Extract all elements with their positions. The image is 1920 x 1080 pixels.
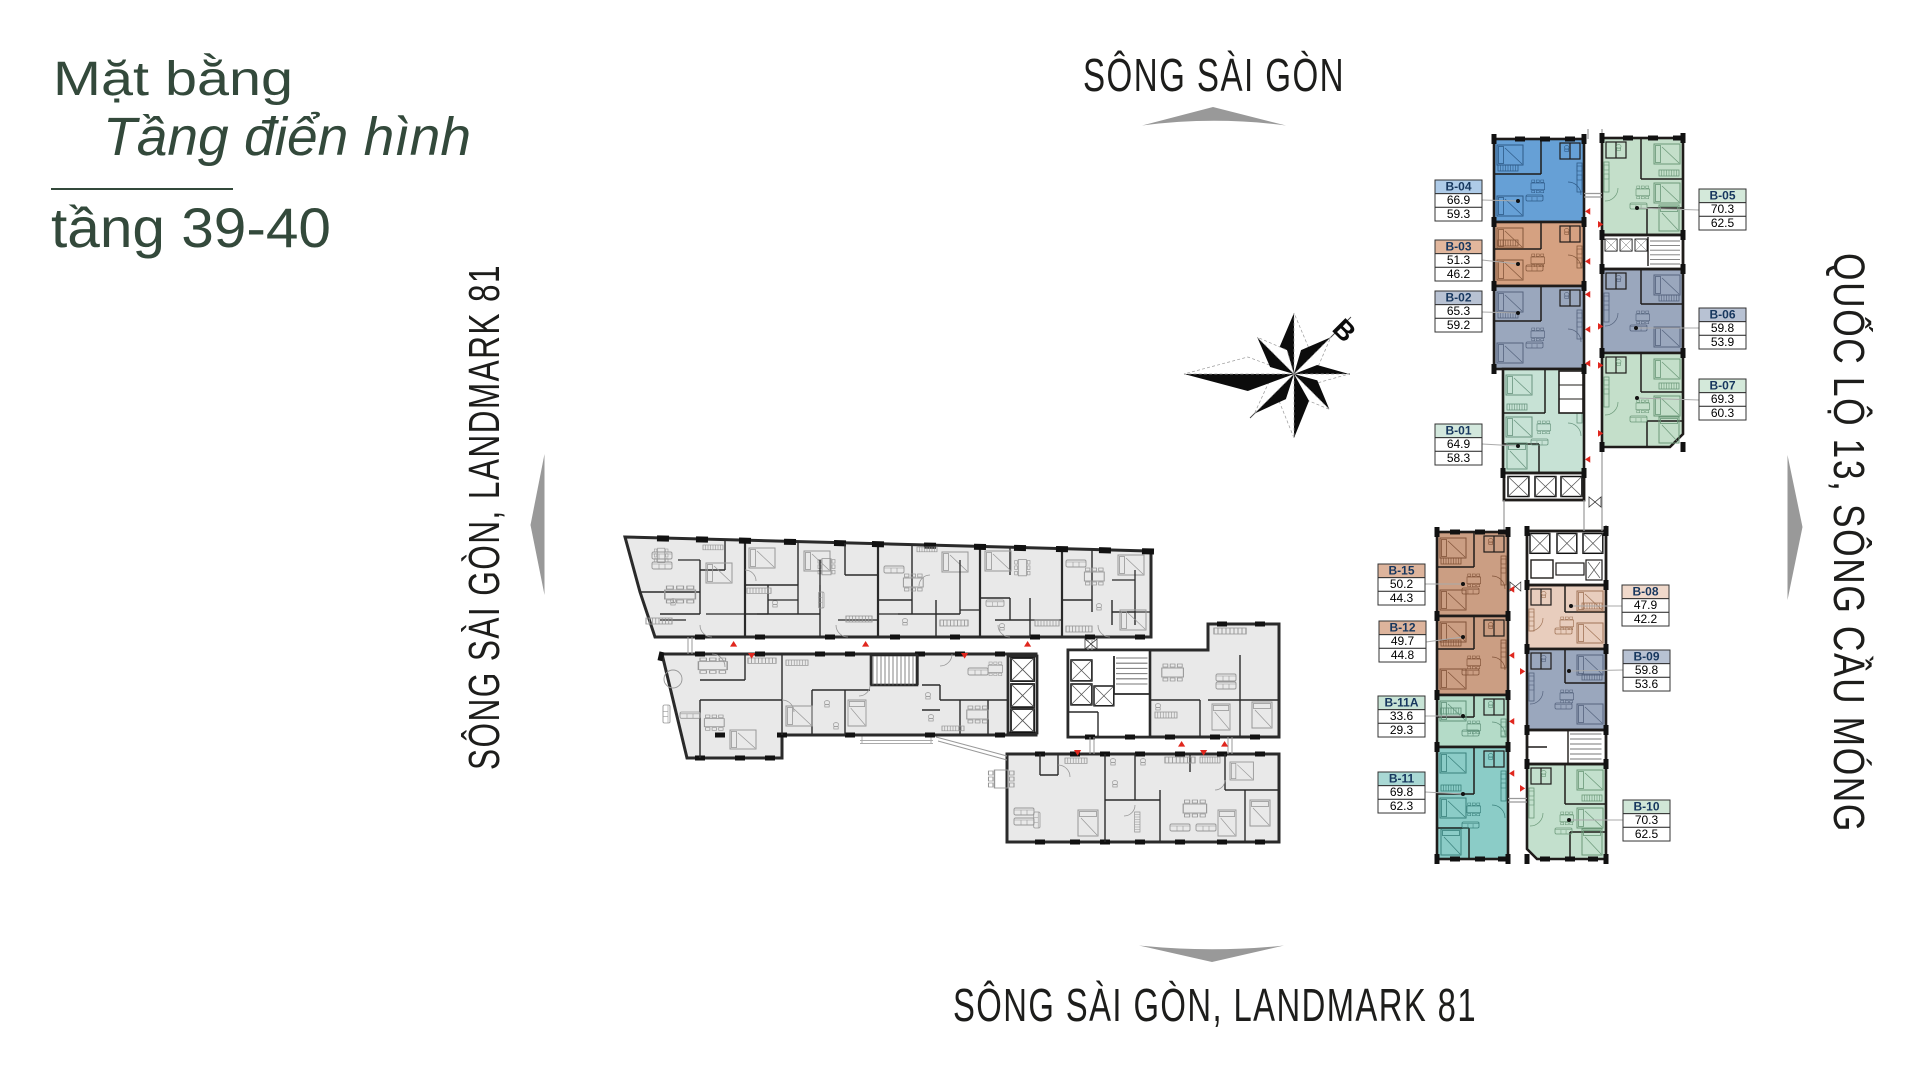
svg-text:62.3: 62.3 (1390, 799, 1414, 813)
svg-text:Mặt bằng: Mặt bằng (53, 52, 293, 106)
svg-text:47.9: 47.9 (1634, 598, 1658, 612)
svg-text:33.6: 33.6 (1390, 709, 1414, 723)
svg-text:tầng 39-40: tầng 39-40 (51, 196, 331, 259)
svg-text:B-15: B-15 (1388, 564, 1414, 578)
svg-text:SÔNG SÀI GÒN, LANDMARK 81: SÔNG SÀI GÒN, LANDMARK 81 (953, 979, 1477, 1031)
svg-text:65.3: 65.3 (1447, 304, 1471, 318)
svg-text:59.3: 59.3 (1447, 207, 1471, 221)
svg-text:B-09: B-09 (1633, 650, 1659, 664)
svg-text:SÔNG SÀI GÒN: SÔNG SÀI GÒN (1083, 49, 1345, 101)
svg-text:59.8: 59.8 (1711, 321, 1735, 335)
svg-text:66.9: 66.9 (1447, 193, 1471, 207)
svg-text:B-11: B-11 (1389, 772, 1415, 786)
svg-text:42.2: 42.2 (1634, 612, 1658, 626)
svg-text:58.3: 58.3 (1447, 451, 1471, 465)
svg-text:B-07: B-07 (1709, 379, 1735, 393)
svg-text:QUỐC LỘ 13, SÔNG CẦU MÓNG: QUỐC LỘ 13, SÔNG CẦU MÓNG (1824, 253, 1875, 833)
svg-text:64.9: 64.9 (1447, 437, 1471, 451)
svg-text:B-08: B-08 (1632, 585, 1658, 599)
svg-text:B-02: B-02 (1445, 291, 1471, 305)
svg-text:SÔNG SÀI GÒN, LANDMARK 81: SÔNG SÀI GÒN, LANDMARK 81 (459, 264, 509, 770)
svg-text:B-01: B-01 (1445, 424, 1471, 438)
svg-text:B-05: B-05 (1709, 189, 1735, 203)
svg-text:B-06: B-06 (1709, 308, 1735, 322)
svg-text:69.3: 69.3 (1711, 392, 1735, 406)
svg-text:Tầng điển hình: Tầng điển hình (103, 107, 471, 167)
svg-text:53.6: 53.6 (1635, 677, 1659, 691)
svg-text:44.8: 44.8 (1391, 648, 1415, 662)
svg-text:B-04: B-04 (1445, 180, 1471, 194)
svg-text:51.3: 51.3 (1447, 253, 1471, 267)
svg-text:B-12: B-12 (1389, 621, 1415, 635)
svg-text:B-11A: B-11A (1384, 696, 1418, 710)
svg-text:59.2: 59.2 (1447, 318, 1471, 332)
svg-text:62.5: 62.5 (1711, 216, 1735, 230)
svg-text:B-10: B-10 (1633, 800, 1659, 814)
svg-text:62.5: 62.5 (1635, 827, 1659, 841)
svg-text:70.3: 70.3 (1635, 813, 1659, 827)
svg-text:53.9: 53.9 (1711, 335, 1735, 349)
svg-text:59.8: 59.8 (1635, 663, 1659, 677)
svg-text:B-03: B-03 (1445, 240, 1471, 254)
svg-text:60.3: 60.3 (1711, 406, 1735, 420)
svg-text:29.3: 29.3 (1390, 723, 1414, 737)
svg-text:70.3: 70.3 (1711, 202, 1735, 216)
svg-text:44.3: 44.3 (1390, 591, 1414, 605)
svg-text:49.7: 49.7 (1391, 634, 1415, 648)
svg-text:46.2: 46.2 (1447, 267, 1471, 281)
svg-text:50.2: 50.2 (1390, 577, 1414, 591)
svg-text:69.8: 69.8 (1390, 785, 1414, 799)
